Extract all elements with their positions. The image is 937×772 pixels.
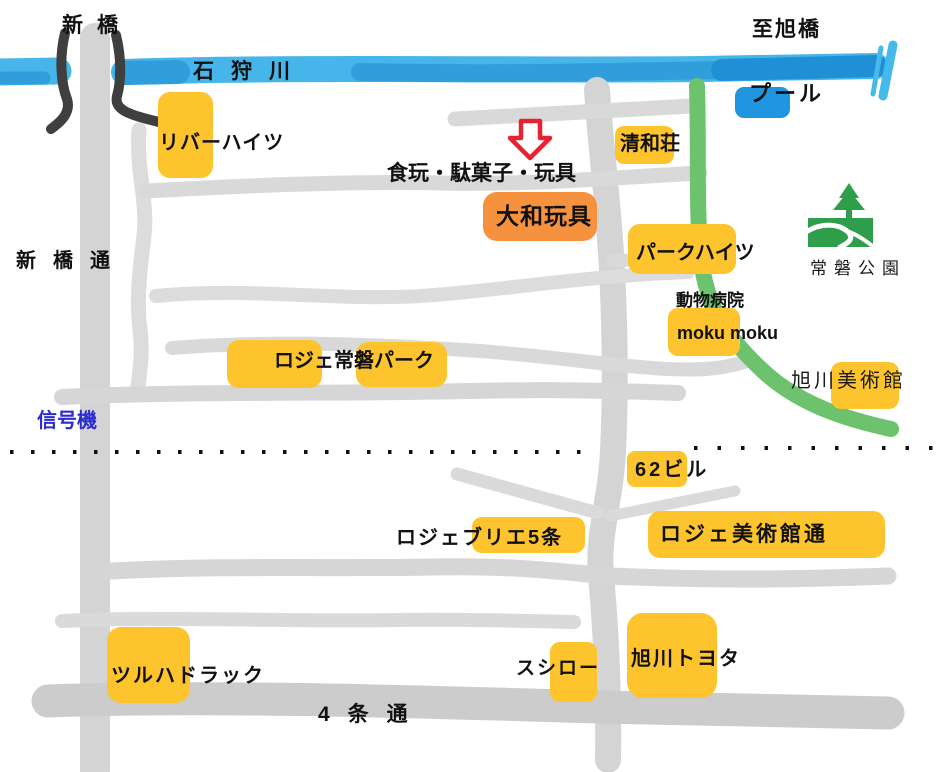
label-roger-brie-5jo: ロジェブリエ5条 bbox=[396, 527, 563, 549]
label-river-heights: リバーハイツ bbox=[159, 132, 284, 154]
label-pool: プール bbox=[749, 82, 824, 106]
road-horizontal-e bbox=[62, 390, 678, 397]
label-asahikawa-museum: 旭川美術館 bbox=[791, 370, 906, 392]
label-yamato-toys: 大和玩具 bbox=[496, 204, 592, 229]
label-roger-museum-dori: ロジェ美術館通 bbox=[660, 523, 828, 546]
label-traffic-signal: 信号機 bbox=[37, 410, 97, 432]
label-shinbashi-dori: 新橋通 bbox=[16, 250, 127, 272]
district-divider-dotted-line bbox=[10, 448, 933, 452]
road-diagonal-left bbox=[457, 474, 598, 513]
label-to-asahibashi: 至旭橋 bbox=[752, 18, 821, 41]
road-horizontal-f bbox=[112, 567, 888, 579]
label-roger-tokiwa-park: ロジェ常磐パーク bbox=[274, 350, 434, 372]
label-shop-caption: 食玩・駄菓子・玩具 bbox=[387, 162, 576, 185]
label-park-heights: パークハイツ bbox=[636, 242, 755, 264]
road-horizontal-g bbox=[62, 619, 574, 622]
label-tokiwa-park: 常磐公園 bbox=[810, 260, 906, 279]
label-yojo-dori: 4条通 bbox=[318, 703, 426, 726]
label-tsuruha-drug: ツルハドラック bbox=[111, 665, 265, 687]
asahibashi-bridge-mark bbox=[883, 45, 893, 96]
road-top-horizontal bbox=[455, 106, 692, 119]
label-seiwaso: 清和荘 bbox=[620, 133, 680, 155]
tokiwa-park-icon bbox=[806, 183, 875, 248]
label-shinbashi: 新橋 bbox=[62, 14, 132, 37]
label-bldg62: 62ビル bbox=[635, 459, 709, 481]
hand-drawn-neighborhood-map: 新橋 石狩川 至旭橋 プール リバーハイツ 清和荘 食玩・駄菓子・玩具 大和玩具… bbox=[0, 0, 937, 772]
label-sushiro: スシロー bbox=[516, 659, 600, 680]
label-animal-hospital: 動物病院 bbox=[676, 292, 744, 311]
label-ishikari-river: 石狩川 bbox=[193, 60, 307, 83]
road-small-vertical bbox=[138, 130, 145, 388]
shop-location-arrow-icon bbox=[510, 121, 550, 158]
label-asahikawa-toyota: 旭川トヨタ bbox=[631, 648, 741, 670]
label-moku-moku: moku moku bbox=[677, 324, 778, 344]
